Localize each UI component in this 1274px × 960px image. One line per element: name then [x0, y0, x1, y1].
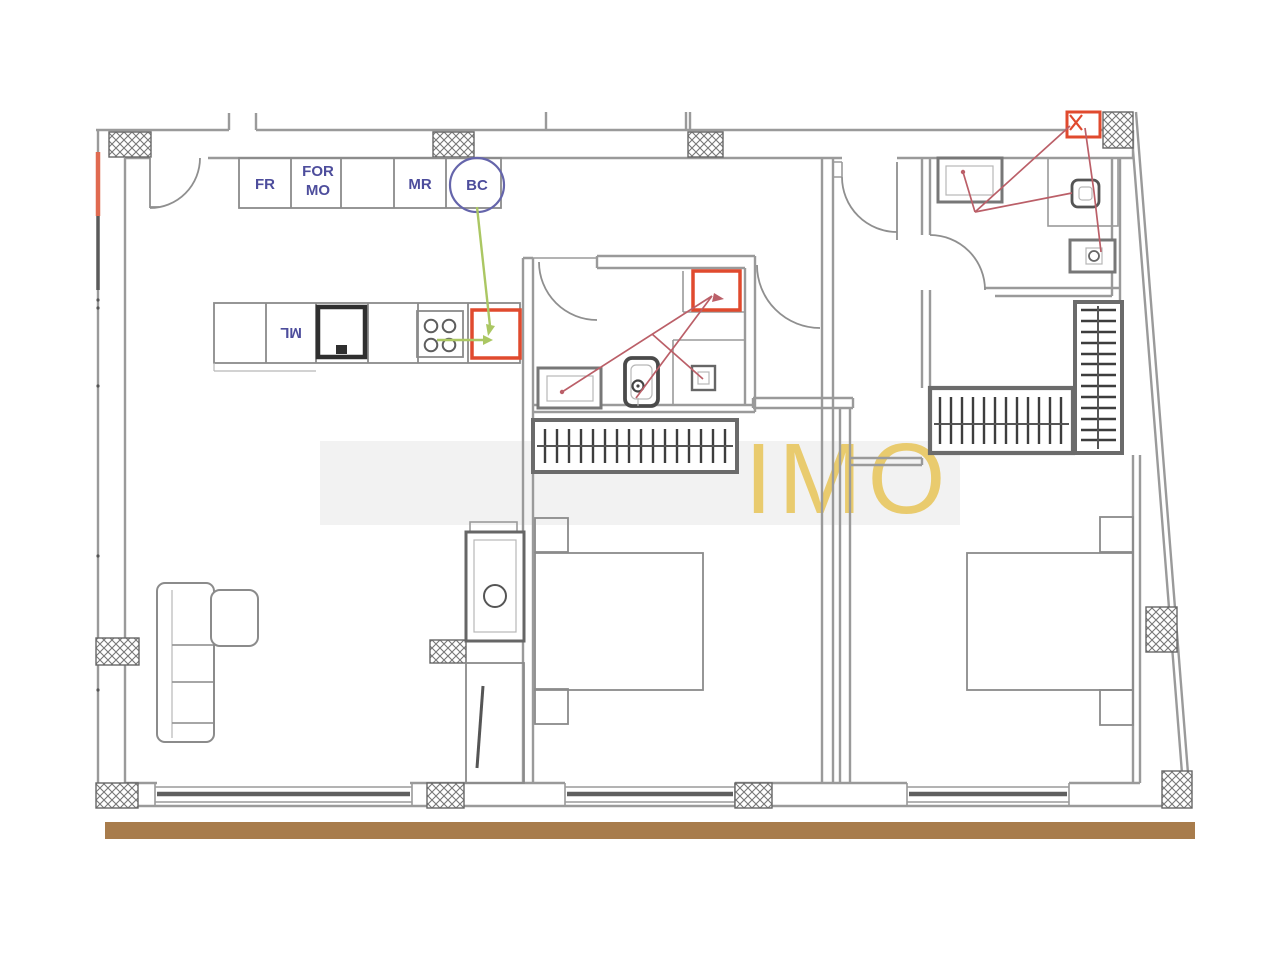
fridge-label: FR [255, 176, 275, 193]
hallway-door [842, 162, 897, 240]
electrical-panel-highlight [1067, 112, 1100, 137]
entry-door [150, 158, 200, 208]
washer-label: ML [280, 324, 302, 341]
nightstand-2b [1100, 690, 1133, 725]
window-bedroom-2 [907, 783, 1069, 806]
floorplan-svg: IMO [0, 0, 1274, 960]
toilet-1 [625, 358, 658, 406]
bedroom-1-door [757, 265, 820, 328]
towel-radiator-1 [533, 420, 737, 472]
bed-2 [967, 553, 1133, 690]
nightstand-1b [535, 689, 568, 724]
watermark-text: IMO [745, 423, 952, 535]
window-living [155, 783, 412, 806]
living-room [157, 522, 524, 783]
wall-fixture-1 [692, 366, 715, 390]
wardrobe-living [466, 663, 524, 783]
kitchen-counter [239, 158, 501, 208]
oven-label-line1: FOR [302, 163, 334, 180]
floor-plan-page: IMO [0, 0, 1274, 960]
kitchen-highlight-box [472, 310, 520, 358]
windows [155, 783, 1069, 806]
bathroom-1 [533, 271, 740, 472]
window-bedroom-1 [565, 783, 735, 806]
footer-bar [105, 822, 1195, 839]
nightstand-2a [1100, 517, 1133, 552]
water-heater-closet [466, 522, 524, 641]
toilet-2 [1070, 240, 1115, 272]
bedroom-2 [967, 517, 1133, 725]
wardrobe-horizontal [930, 388, 1073, 453]
bathroom-1-door [539, 262, 597, 320]
stove [417, 311, 463, 357]
wardrobe-vertical [1075, 302, 1122, 453]
bedroom-1 [535, 518, 703, 724]
boiler-label: BC [466, 177, 488, 194]
bed-1 [535, 553, 703, 690]
shower [1048, 158, 1118, 226]
kitchen-sink [318, 307, 365, 357]
bathroom-2-door [930, 235, 985, 290]
oven-label-line2: MO [306, 182, 330, 199]
bathroom-2 [930, 112, 1122, 453]
microwave-label: MR [408, 176, 431, 193]
sofa [157, 583, 258, 742]
